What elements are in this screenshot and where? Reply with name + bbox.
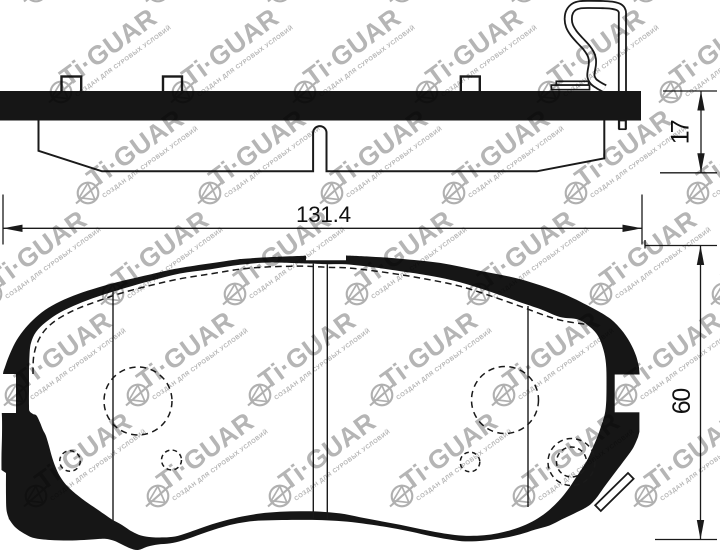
- svg-text:60: 60: [668, 389, 696, 415]
